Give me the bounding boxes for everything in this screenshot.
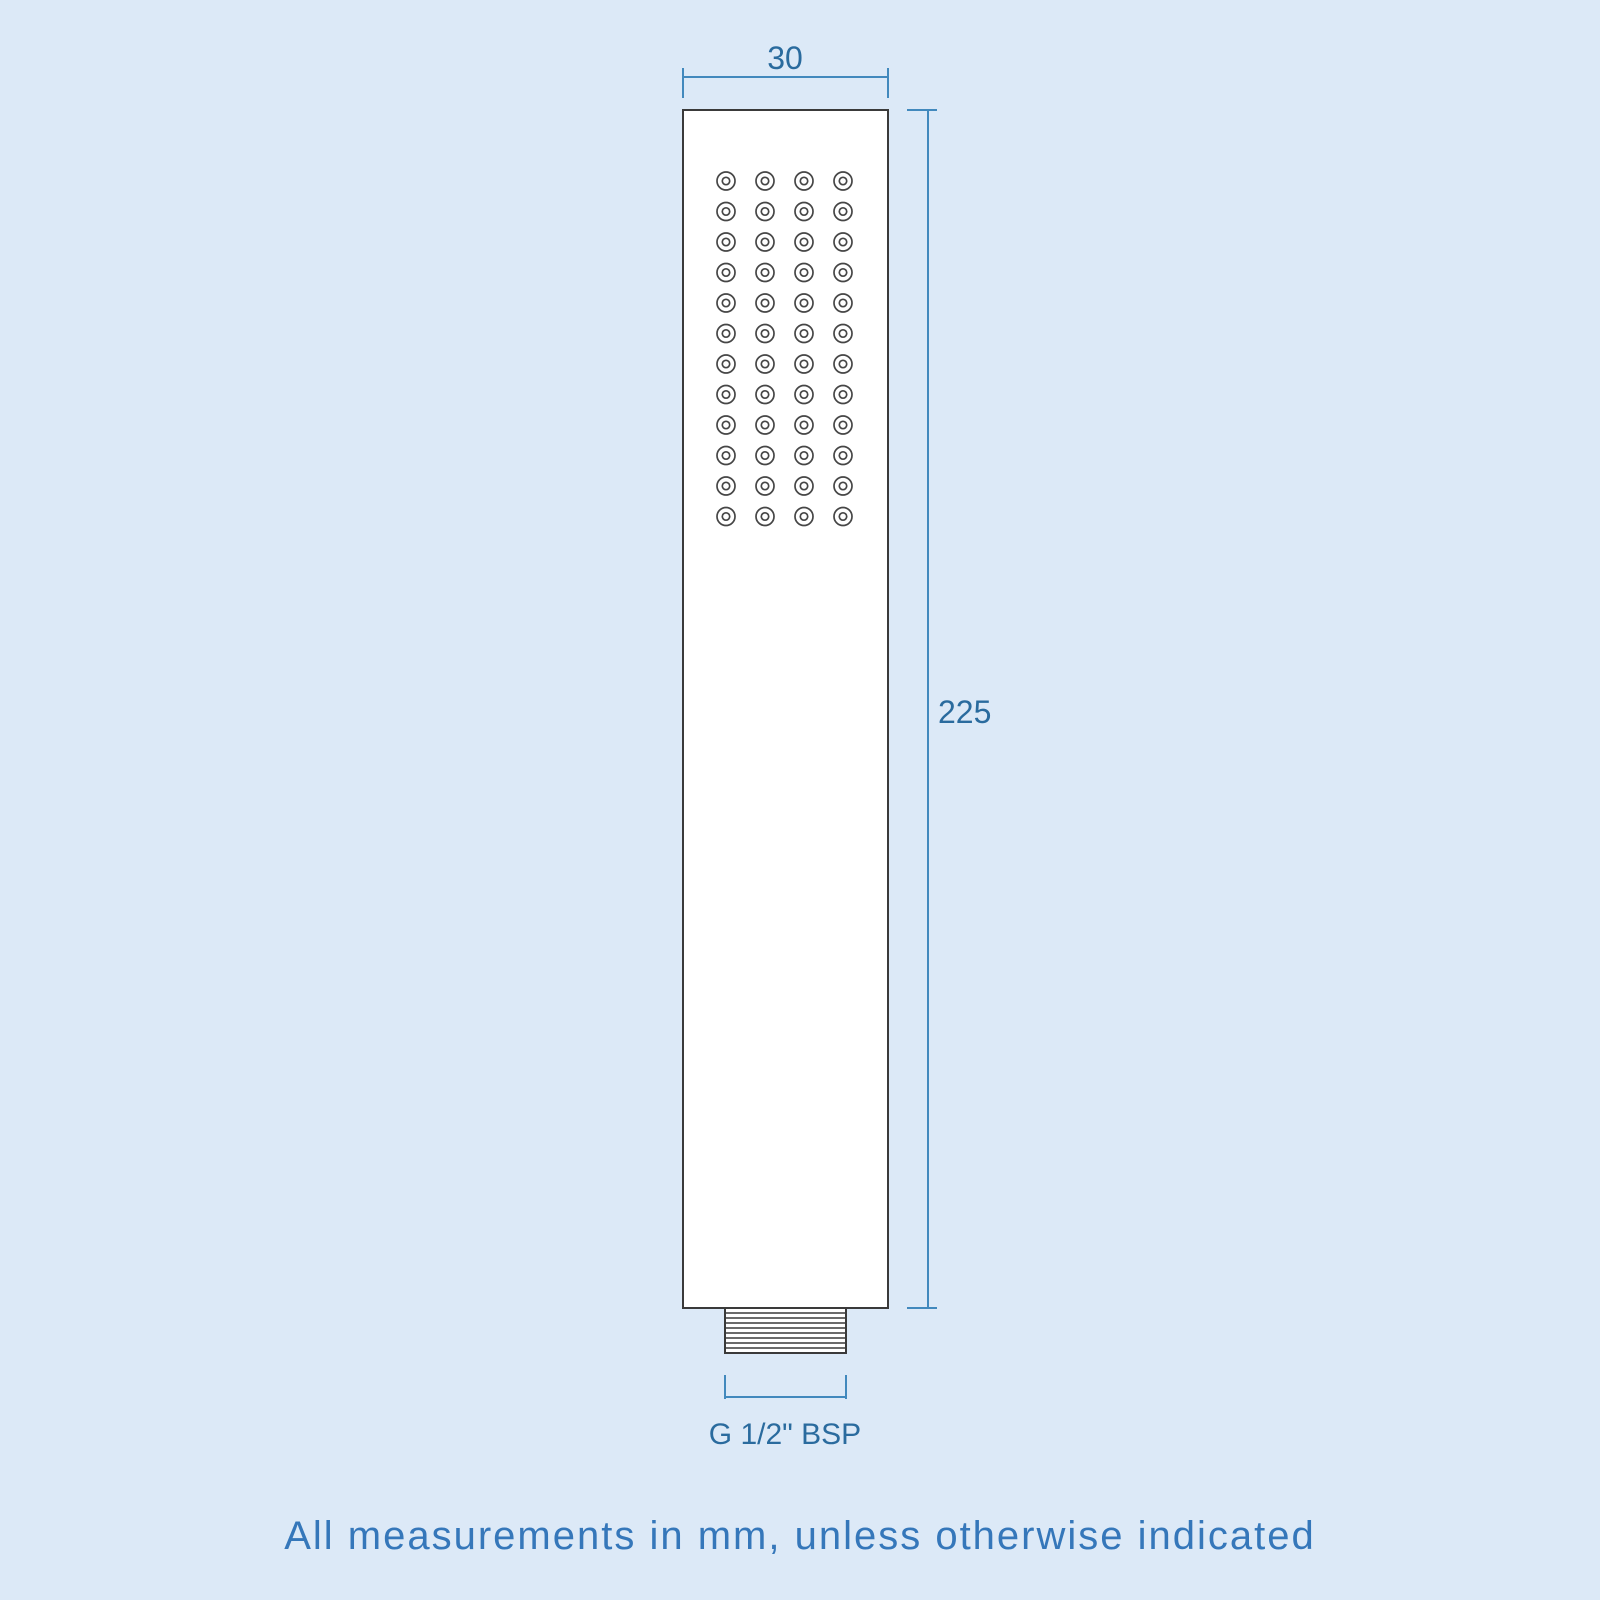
width-dimension-label: 30 — [767, 40, 803, 76]
width-dimension: 30 — [683, 40, 888, 98]
thread-dimension-label: G 1/2" BSP — [709, 1418, 861, 1451]
measurement-note: All measurements in mm, unless otherwise… — [0, 1514, 1600, 1559]
thread-connector-outline — [725, 1308, 846, 1353]
shower-handset-diagram: 30 225 G 1/2" BSP — [0, 0, 1600, 1600]
thread-dimension: G 1/2" BSP — [709, 1375, 861, 1451]
handset-body-outline — [683, 110, 888, 1308]
height-dimension-label: 225 — [938, 694, 991, 730]
technical-drawing-canvas: 30 225 G 1/2" BSP All measurements in mm… — [0, 0, 1600, 1600]
height-dimension: 225 — [907, 110, 991, 1308]
